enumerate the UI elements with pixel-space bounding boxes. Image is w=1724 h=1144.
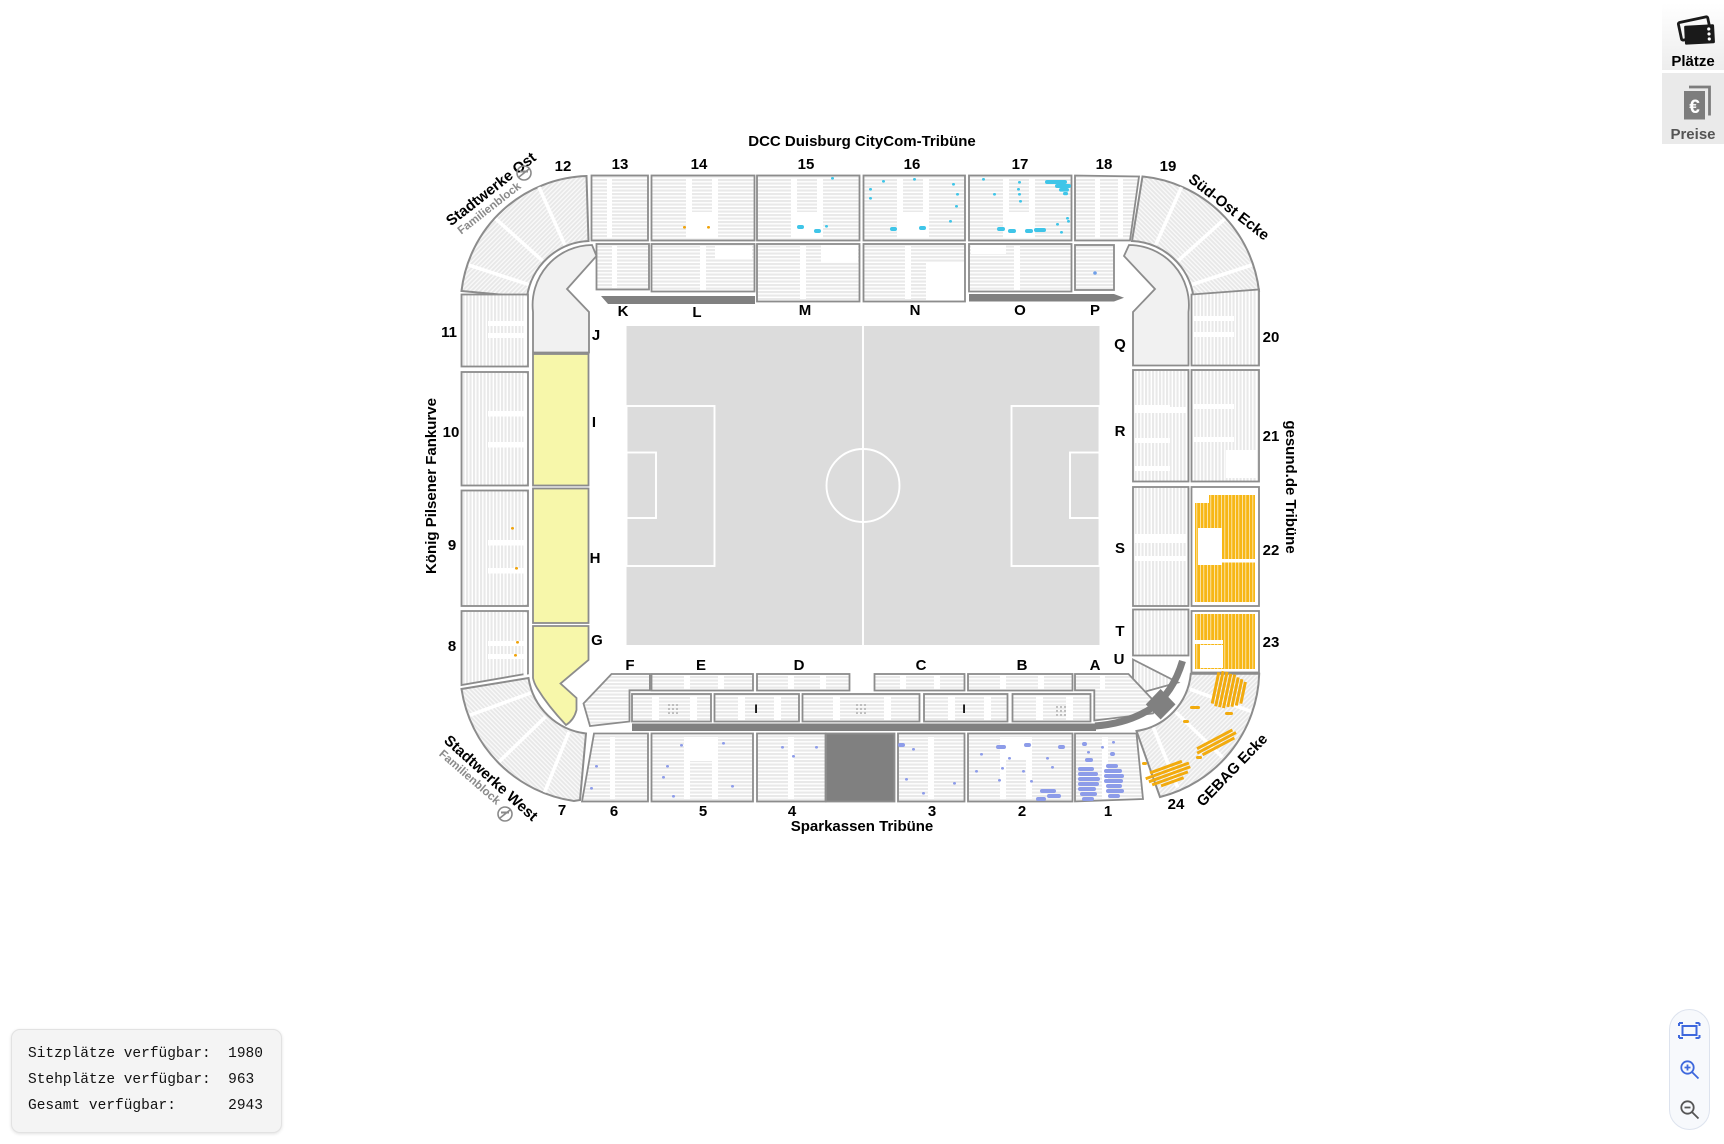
svg-text:O: O (1014, 302, 1026, 319)
svg-text:4: 4 (788, 803, 797, 820)
svg-text:24: 24 (1168, 796, 1185, 813)
svg-text:6: 6 (610, 803, 618, 820)
svg-text:Q: Q (1114, 336, 1126, 353)
svg-text:8: 8 (448, 638, 456, 655)
svg-text:21: 21 (1263, 428, 1280, 445)
svg-text:11: 11 (441, 324, 457, 341)
svg-text:Sparkassen Tribüne: Sparkassen Tribüne (791, 818, 934, 835)
svg-text:G: G (591, 632, 603, 649)
svg-text:I: I (592, 414, 596, 431)
svg-text:S: S (1115, 540, 1125, 557)
svg-text:N: N (910, 302, 921, 319)
svg-text:F: F (625, 657, 634, 674)
svg-text:20: 20 (1263, 329, 1280, 346)
svg-text:18: 18 (1096, 156, 1113, 173)
svg-text:13: 13 (612, 156, 629, 173)
svg-text:L: L (692, 304, 701, 321)
svg-text:M: M (799, 302, 812, 319)
svg-text:C: C (916, 657, 927, 674)
svg-text:3: 3 (928, 803, 936, 820)
svg-text:15: 15 (798, 156, 815, 173)
svg-text:12: 12 (555, 158, 572, 175)
svg-text:23: 23 (1263, 634, 1280, 651)
svg-text:9: 9 (448, 537, 456, 554)
svg-text:2: 2 (1018, 803, 1026, 820)
svg-text:gesund.de Tribüne: gesund.de Tribüne (1282, 420, 1299, 553)
svg-text:K: K (618, 303, 629, 320)
svg-text:König Pilsener Fankurve: König Pilsener Fankurve (423, 398, 440, 574)
svg-text:7: 7 (558, 802, 566, 819)
svg-text:1: 1 (1104, 803, 1112, 820)
svg-text:DCC Duisburg CityCom-Tribüne: DCC Duisburg CityCom-Tribüne (748, 133, 976, 150)
svg-text:17: 17 (1012, 156, 1029, 173)
svg-text:H: H (590, 550, 601, 567)
svg-text:R: R (1115, 423, 1126, 440)
svg-text:D: D (794, 657, 805, 674)
svg-text:J: J (592, 327, 600, 344)
svg-text:B: B (1017, 657, 1028, 674)
svg-text:I: I (754, 702, 757, 716)
svg-text:T: T (1115, 623, 1124, 640)
svg-text:16: 16 (904, 156, 921, 173)
svg-text:22: 22 (1263, 542, 1280, 559)
svg-text:I: I (962, 702, 965, 716)
svg-text:10: 10 (443, 424, 460, 441)
svg-text:5: 5 (699, 803, 707, 820)
svg-text:19: 19 (1160, 158, 1177, 175)
svg-text:14: 14 (691, 156, 708, 173)
svg-text:P: P (1090, 302, 1100, 319)
svg-text:E: E (696, 657, 706, 674)
svg-text:U: U (1114, 651, 1125, 668)
svg-text:A: A (1090, 657, 1101, 674)
